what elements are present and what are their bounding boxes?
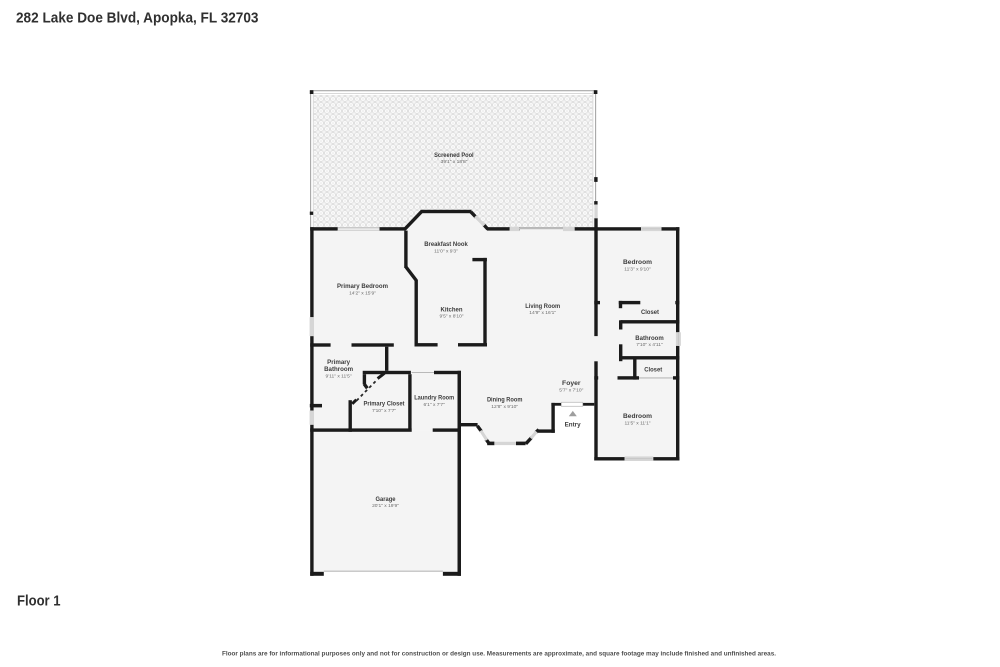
svg-text:Bathroom: Bathroom	[324, 366, 353, 373]
svg-text:11'0" x 9'3": 11'0" x 9'3"	[434, 248, 458, 254]
svg-text:14'2" x 15'9": 14'2" x 15'9"	[349, 291, 376, 297]
svg-text:Laundry Room: Laundry Room	[414, 394, 454, 401]
svg-text:Kitchen: Kitchen	[441, 307, 463, 314]
svg-text:6'1" x 7'7": 6'1" x 7'7"	[424, 402, 446, 408]
svg-text:Breakfast Nook: Breakfast Nook	[424, 241, 468, 248]
svg-text:Dining Room: Dining Room	[487, 397, 523, 404]
svg-text:Floor plans are for informatio: Floor plans are for informational purpos…	[222, 651, 776, 658]
svg-text:Entry: Entry	[565, 421, 581, 428]
svg-text:Bedroom: Bedroom	[623, 413, 652, 420]
svg-text:39'1" x 18'8": 39'1" x 18'8"	[441, 159, 468, 165]
svg-text:Bedroom: Bedroom	[623, 259, 652, 266]
svg-text:7'10" x 7'7": 7'10" x 7'7"	[372, 408, 396, 414]
svg-text:5'7" x 7'10": 5'7" x 7'10"	[559, 388, 583, 394]
svg-text:Living Room: Living Room	[525, 303, 560, 310]
svg-text:Closet: Closet	[644, 366, 663, 373]
svg-text:11'5" x 11'1": 11'5" x 11'1"	[624, 420, 650, 426]
svg-text:Garage: Garage	[376, 496, 396, 503]
svg-text:Foyer: Foyer	[562, 380, 581, 387]
svg-text:20'1" x 19'9": 20'1" x 19'9"	[372, 503, 399, 509]
svg-text:9'5" x 8'10": 9'5" x 8'10"	[439, 314, 463, 320]
svg-text:Primary Bedroom: Primary Bedroom	[337, 283, 388, 290]
svg-text:282 Lake Doe Blvd, Apopka, FL: 282 Lake Doe Blvd, Apopka, FL 32703	[16, 11, 259, 27]
svg-text:7'10" x 4'11": 7'10" x 4'11"	[636, 342, 663, 348]
svg-text:12'8" x 9'10": 12'8" x 9'10"	[491, 404, 518, 410]
svg-text:Screened Pool: Screened Pool	[434, 152, 474, 159]
svg-text:Closet: Closet	[641, 309, 660, 316]
svg-text:14'9" x 16'1": 14'9" x 16'1"	[529, 310, 556, 316]
svg-text:Floor 1: Floor 1	[17, 593, 61, 609]
svg-text:Primary: Primary	[327, 359, 350, 366]
svg-text:11'3" x 9'10": 11'3" x 9'10"	[624, 266, 651, 272]
svg-text:Primary Closet: Primary Closet	[364, 401, 406, 408]
svg-text:9'11" x 11'5": 9'11" x 11'5"	[326, 373, 352, 379]
svg-text:Bathroom: Bathroom	[635, 335, 664, 342]
